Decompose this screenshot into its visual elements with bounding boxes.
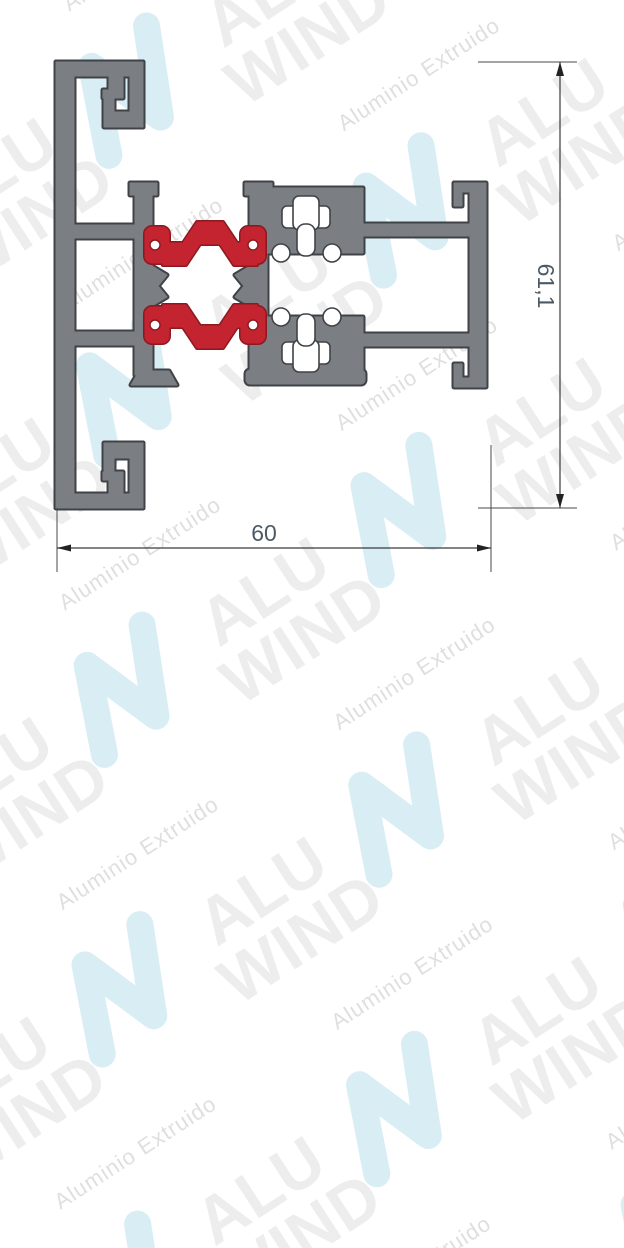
watermark-brand-text: ALU WIND: [174, 1112, 391, 1248]
watermark-brand-text: ALU WIND: [453, 633, 624, 833]
aluwind-logo-swoosh-icon: [34, 597, 225, 779]
watermark-brand-text: ALU WIND: [0, 693, 119, 893]
watermark-brand-text: ALU WIND: [448, 1232, 624, 1248]
watermark-tile: ALU WIND Aluminio Extruido: [433, 1127, 624, 1248]
watermark-tile: ALU WIND Aluminio Extruido: [0, 767, 22, 1156]
dimension-height-label: 61,1: [533, 264, 559, 309]
watermark-brand-text: ALU WIND: [176, 813, 393, 1013]
watermark-tile: ALU WIND Aluminio Extruido: [0, 1067, 20, 1248]
watermark-tile: ALU WIND Aluminio Extruido: [0, 887, 297, 1248]
watermark-tagline: Aluminio Extruido: [326, 911, 498, 1035]
dimension-width-label: 60: [251, 520, 277, 546]
aluwind-logo-swoosh-icon: [583, 837, 624, 1019]
watermark-tagline: Aluminio Extruido: [324, 1210, 496, 1248]
watermark-tagline: Aluminio Extruido: [329, 611, 501, 735]
watermark-tagline: Aluminio Extruido: [601, 1031, 624, 1155]
profile-drawing: 60 61,1: [0, 0, 624, 624]
aluminum-profile: [56, 62, 486, 508]
aluwind-logo-swoosh-icon: [306, 1016, 497, 1198]
watermark-brand-text: ALU WIND: [0, 992, 116, 1192]
aluwind-logo-swoosh-icon: [32, 896, 223, 1078]
watermark-tile: ALU WIND Aluminio Extruido: [0, 588, 299, 977]
watermark-tile: ALU WIND Aluminio Extruido: [161, 707, 574, 1096]
watermark-tagline: Aluminio Extruido: [603, 731, 624, 855]
aluwind-logo-swoosh-icon: [29, 1196, 220, 1248]
watermark-tagline: Aluminio Extruido: [50, 1091, 222, 1215]
watermark-tile: ALU WIND Aluminio Extruido: [0, 1187, 295, 1248]
watermark-tagline: Aluminio Extruido: [52, 791, 224, 915]
watermark-tile: ALU WIND Aluminio Extruido: [159, 1007, 572, 1248]
aluwind-logo-swoosh-icon: [581, 1136, 624, 1248]
watermark-brand-text: ALU WIND: [451, 932, 624, 1132]
aluwind-logo-swoosh-icon: [308, 717, 499, 899]
watermark-tile: ALU WIND Aluminio Extruido: [435, 827, 624, 1216]
